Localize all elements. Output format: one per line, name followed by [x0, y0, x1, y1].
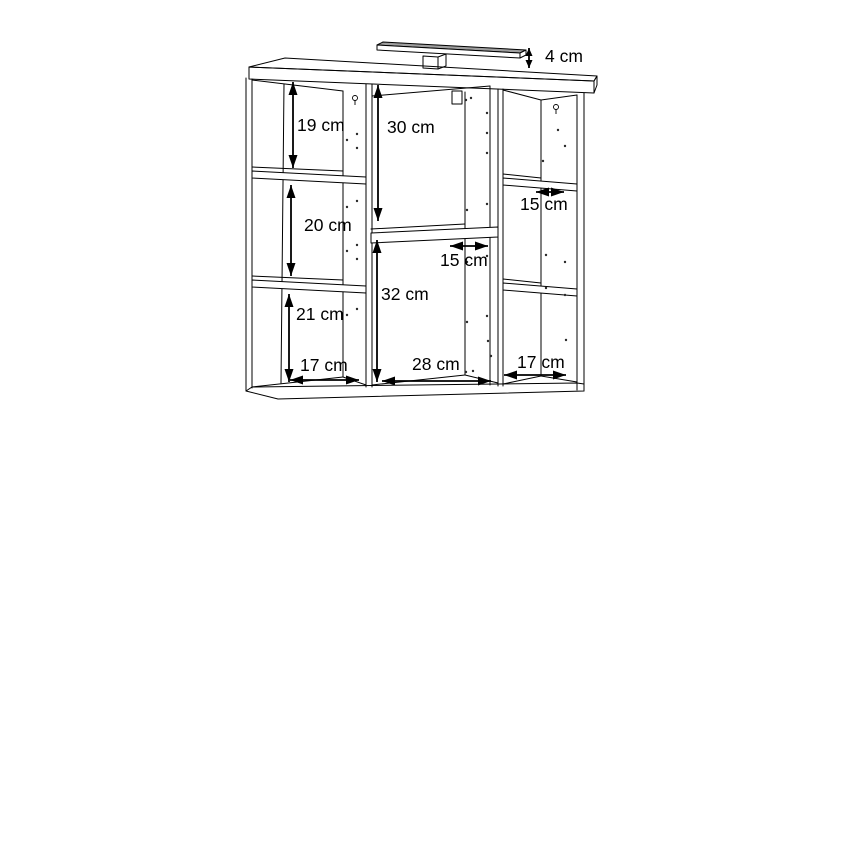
cabinet-dimension-diagram: 4 cm 19 cm 30 cm 15 cm 20 cm 15 cm 32 cm…: [0, 0, 868, 868]
dim-label-right-width: 17 cm: [517, 352, 565, 372]
dim-label-middle-bottom-height: 32 cm: [381, 284, 429, 304]
dimension-annotations: 4 cm 19 cm 30 cm 15 cm 20 cm 15 cm 32 cm…: [289, 46, 583, 382]
middle-shelf: [371, 224, 498, 243]
dim-label-left-bottom-height: 21 cm: [296, 304, 344, 324]
dim-label-lamp-height: 4 cm: [545, 46, 583, 66]
shelf-pin-holes: [487, 129, 567, 357]
dim-label-left-top-height: 19 cm: [297, 115, 345, 135]
right-compartment: [487, 90, 577, 384]
diagram-page: 4 cm 19 cm 30 cm 15 cm 20 cm 15 cm 32 cm…: [0, 0, 868, 868]
dim-label-right-shelf-depth: 15 cm: [520, 194, 568, 214]
dim-label-middle-width: 28 cm: [412, 354, 460, 374]
right-shelf-2: [503, 279, 577, 296]
right-shelf-1: [503, 174, 577, 191]
left-shelf-2: [252, 276, 366, 293]
dim-label-middle-top-height: 30 cm: [387, 117, 435, 137]
left-shelf-1: [252, 167, 366, 184]
hanger-hole-icon: [554, 105, 559, 115]
lamp-bar: [377, 42, 526, 58]
mounting-bracket: [452, 91, 462, 104]
hanger-hole-icon: [353, 96, 358, 106]
dim-label-left-width: 17 cm: [300, 355, 348, 375]
bottom-panel: [246, 383, 584, 399]
dim-label-left-middle-height: 20 cm: [304, 215, 352, 235]
dim-label-middle-shelf-depth: 15 cm: [440, 250, 488, 270]
